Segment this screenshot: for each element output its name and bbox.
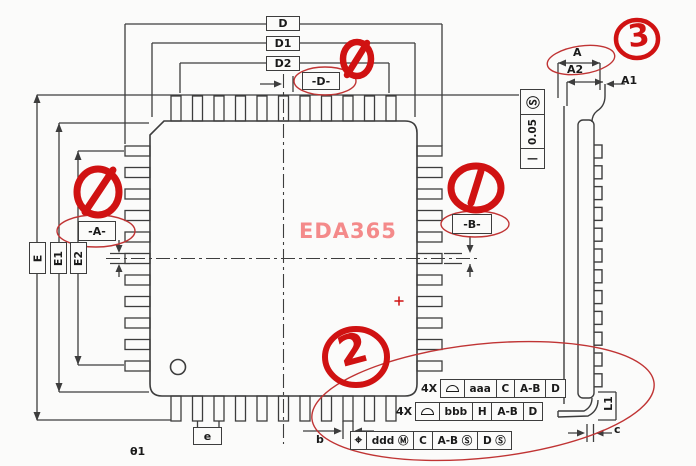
fcf2-datum3: D — [523, 402, 544, 421]
datum-box-b: -B- — [452, 214, 492, 234]
fcf-frame-aaa: 4X aaa C A-B D — [421, 379, 566, 398]
stroke-mark-b — [471, 171, 481, 203]
side-view-body — [578, 120, 594, 398]
pin — [193, 96, 203, 121]
fcf2-datum2: A-B — [491, 402, 524, 421]
dim-label-e: E — [29, 242, 46, 274]
datum-box-d: -D- — [302, 72, 340, 90]
pin — [343, 396, 353, 421]
pin — [386, 96, 396, 121]
fcf1-prefix: 4X — [421, 379, 437, 398]
fcf1-datum2: A-B — [514, 379, 547, 398]
pin — [193, 396, 203, 421]
pin — [236, 96, 246, 121]
lead-thickness-label: c — [614, 424, 621, 435]
fcf3-datum1: C — [413, 431, 433, 450]
straightness-callout: Ⓢ 0.05 — — [520, 90, 545, 169]
fcf3-tolerance: ddd Ⓜ — [366, 431, 415, 450]
position-icon: ⌖ — [350, 431, 367, 450]
fcf3-datum2: A-B Ⓢ — [432, 431, 479, 450]
pin — [125, 168, 150, 178]
pin — [171, 96, 181, 121]
pin — [300, 396, 310, 421]
dim-label-a2: A2 — [567, 64, 583, 75]
pin — [417, 232, 442, 242]
pin — [322, 96, 332, 121]
pitch-label-box: e — [193, 427, 222, 445]
pin — [125, 361, 150, 371]
pin — [365, 96, 375, 121]
watermark: EDA365 — [299, 219, 397, 243]
pin — [417, 318, 442, 328]
pin — [386, 396, 396, 421]
pin — [125, 318, 150, 328]
side-view — [558, 84, 605, 417]
pin — [417, 211, 442, 221]
foot-length-text: L1 — [603, 396, 614, 411]
dim-label-e2-text: E2 — [73, 250, 84, 265]
dim-label-e1-text: E1 — [53, 250, 64, 265]
dim-label-e1: E1 — [50, 242, 67, 274]
dim-label-e-text: E — [32, 254, 43, 262]
pin — [171, 396, 181, 421]
fcf2-tolerance: bbb — [439, 402, 474, 421]
straightness-value-cell: 0.05 — [520, 114, 545, 149]
pin — [125, 211, 150, 221]
dim-label-a1: A1 — [621, 75, 637, 86]
modifier-s-cell: Ⓢ — [520, 89, 545, 116]
pin — [417, 297, 442, 307]
pin — [214, 96, 224, 121]
fcf3-datum3: D Ⓢ — [477, 431, 512, 450]
dim-label-d: D — [266, 16, 300, 31]
fcf-frame-ddd: ⌖ ddd Ⓜ C A-B Ⓢ D Ⓢ — [351, 431, 512, 450]
angle-label: θ1 — [130, 446, 145, 457]
dim-label-d2: D2 — [266, 56, 300, 71]
fcf2-datum1: H — [472, 402, 493, 421]
fcf1-datum3: D — [545, 379, 566, 398]
pin — [322, 396, 332, 421]
pin — [417, 189, 442, 199]
red-note-3: 3 — [626, 20, 651, 53]
pin — [417, 168, 442, 178]
lead-width-label: b — [316, 434, 324, 445]
fcf2-prefix: 4X — [396, 402, 412, 421]
datum-box-a: -A- — [78, 221, 116, 241]
pin — [125, 189, 150, 199]
dim-label-d1: D1 — [266, 36, 300, 51]
small-red-plus — [395, 297, 403, 305]
pin — [125, 275, 150, 285]
profile-of-surface-icon — [415, 402, 440, 421]
slash-mark-a — [85, 170, 113, 212]
pin — [417, 340, 442, 350]
qfp-package-drawing: D D1 D2 -D- -A- -B- E E1 E2 e b θ1 A A2 … — [0, 0, 696, 466]
pin — [257, 396, 267, 421]
pin — [417, 361, 442, 371]
pin — [125, 297, 150, 307]
fcf-frame-bbb: 4X bbb H A-B D — [396, 402, 543, 421]
pin — [417, 275, 442, 285]
pin — [417, 146, 442, 156]
profile-of-surface-icon — [440, 379, 465, 398]
pin — [343, 96, 353, 121]
fcf1-datum1: C — [496, 379, 516, 398]
pin — [125, 146, 150, 156]
dim-label-e2: E2 — [70, 242, 87, 274]
pin — [236, 396, 246, 421]
pin1-index-circle — [171, 360, 186, 375]
pin — [125, 340, 150, 350]
fcf1-tolerance: aaa — [464, 379, 497, 398]
dim-label-a: A — [573, 47, 582, 58]
pin — [300, 96, 310, 121]
foot-length-label: L1 — [601, 398, 616, 420]
pin — [257, 96, 267, 121]
straightness-symbol-cell: — — [520, 148, 545, 169]
pin — [214, 396, 224, 421]
pin — [365, 396, 375, 421]
